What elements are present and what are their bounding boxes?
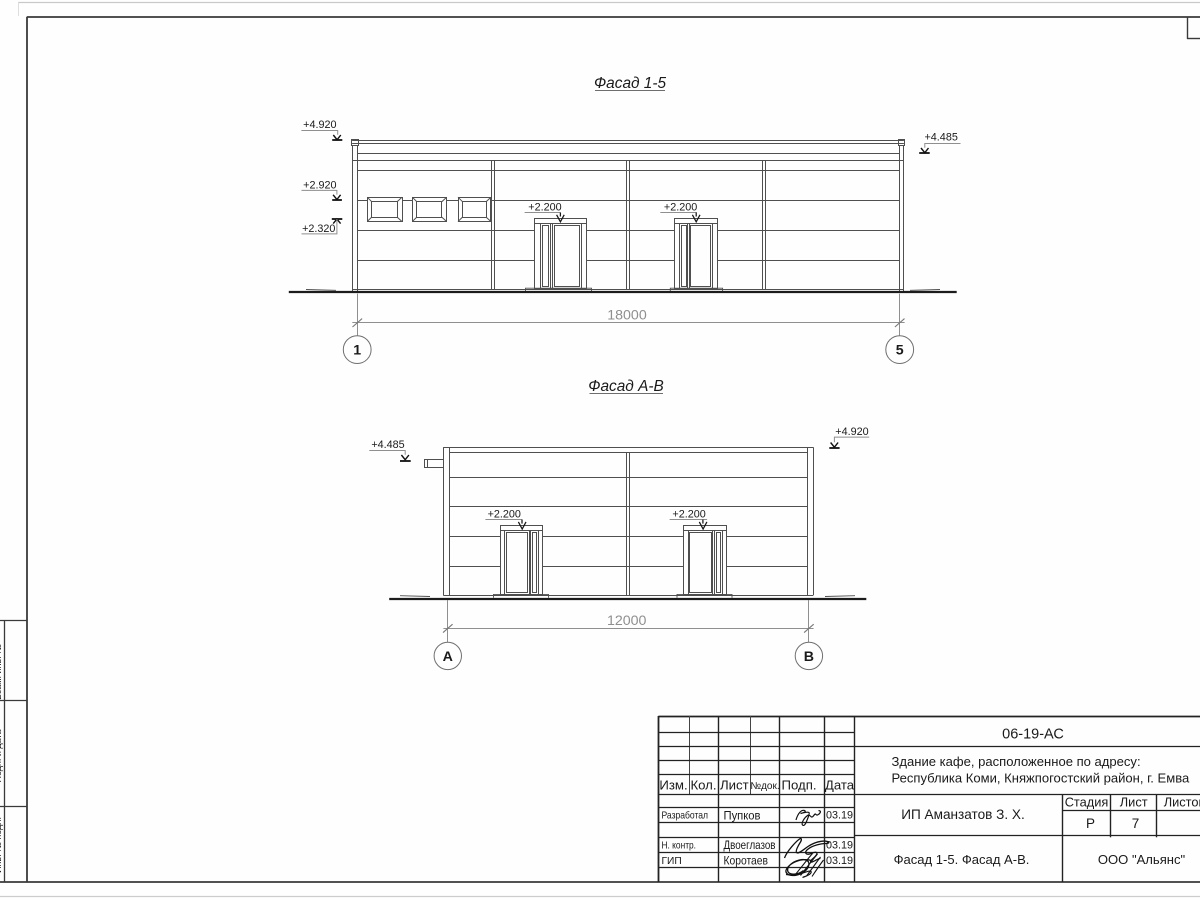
svg-text:Р: Р xyxy=(1086,816,1095,831)
svg-text:06-19-АС: 06-19-АС xyxy=(1002,727,1064,743)
svg-text:+4.485: +4.485 xyxy=(371,439,404,451)
svg-text:А: А xyxy=(443,649,453,665)
svg-text:Коротаев: Коротаев xyxy=(724,853,769,867)
svg-text:Инв. № подл.: Инв. № подл. xyxy=(0,817,3,873)
svg-text:ГИП: ГИП xyxy=(662,856,682,867)
svg-text:7: 7 xyxy=(1132,816,1140,831)
svg-text:Здание кафе, расположенное по: Здание кафе, расположенное по адресу: xyxy=(892,754,1141,769)
svg-text:+4.920: +4.920 xyxy=(303,119,336,131)
svg-text:Кол.: Кол. xyxy=(690,778,716,793)
svg-text:Н. контр.: Н. контр. xyxy=(662,840,697,851)
svg-text:Подп. и дата: Подп. и дата xyxy=(0,729,3,782)
svg-text:+4.920: +4.920 xyxy=(835,426,868,438)
svg-text:ИП Аманзатов З. Х.: ИП Аманзатов З. Х. xyxy=(901,807,1025,822)
svg-text:Фасад А-В: Фасад А-В xyxy=(588,378,664,395)
svg-text:Подп.: Подп. xyxy=(781,778,816,793)
svg-text:5: 5 xyxy=(896,343,904,359)
svg-text:12000: 12000 xyxy=(607,613,647,629)
svg-text:Фасад 1-5. Фасад А-В.: Фасад 1-5. Фасад А-В. xyxy=(894,852,1030,867)
svg-text:Изм.: Изм. xyxy=(659,778,687,793)
svg-text:03.19: 03.19 xyxy=(826,855,853,867)
svg-text:+2.200: +2.200 xyxy=(664,201,697,213)
svg-text:+2.320: +2.320 xyxy=(302,223,335,235)
svg-text:Пупков: Пупков xyxy=(724,808,761,822)
svg-text:Двоеглазов: Двоеглазов xyxy=(724,838,776,852)
svg-text:Листов: Листов xyxy=(1164,794,1200,809)
svg-text:В: В xyxy=(804,649,814,665)
svg-text:Разработал: Разработал xyxy=(662,810,709,822)
svg-text:Лист: Лист xyxy=(1120,794,1148,809)
svg-text:Взам. инв. №: Взам. инв. № xyxy=(0,644,3,700)
svg-text:Лист: Лист xyxy=(720,778,749,793)
svg-text:ООО "Альянс": ООО "Альянс" xyxy=(1098,852,1186,867)
svg-text:+2.200: +2.200 xyxy=(672,509,705,521)
svg-text:Фасад 1-5: Фасад 1-5 xyxy=(594,75,667,92)
svg-text:+2.200: +2.200 xyxy=(488,509,521,521)
svg-text:Республика Коми, Княжпогостски: Республика Коми, Княжпогостский район, г… xyxy=(892,771,1190,786)
svg-text:Стадия: Стадия xyxy=(1065,794,1109,809)
svg-text:1: 1 xyxy=(353,343,361,359)
svg-text:+2.200: +2.200 xyxy=(528,201,561,213)
svg-text:03.19: 03.19 xyxy=(826,839,853,851)
svg-text:Дата: Дата xyxy=(825,778,855,793)
svg-text:+4.485: +4.485 xyxy=(925,131,958,143)
svg-text:03.19: 03.19 xyxy=(826,810,853,822)
svg-text:+2.920: +2.920 xyxy=(303,180,336,192)
svg-text:№док.: №док. xyxy=(750,781,779,792)
svg-text:18000: 18000 xyxy=(607,307,647,323)
